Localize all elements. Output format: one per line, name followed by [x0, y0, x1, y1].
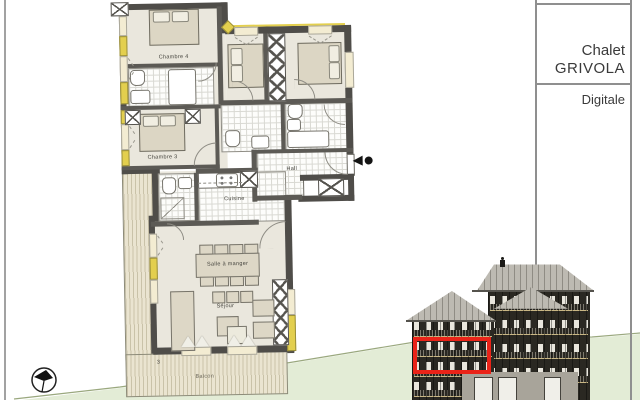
toilet	[288, 104, 303, 119]
window	[121, 124, 129, 150]
chair	[214, 244, 228, 254]
chimney-cap	[501, 257, 504, 260]
room-label-chambre3: Chambre 3	[148, 154, 178, 161]
entry-marker-icon	[353, 155, 373, 165]
entry-dot-icon	[365, 156, 373, 164]
drawing-detail	[157, 236, 163, 244]
window-swing-mark	[129, 58, 138, 80]
duct-shaft	[267, 33, 286, 101]
pillow	[230, 48, 242, 65]
window-swing-mark	[158, 235, 167, 255]
wall	[256, 195, 302, 201]
building-base	[462, 372, 578, 400]
window	[150, 280, 158, 304]
titleblock-divider-line	[535, 83, 631, 85]
garage-door	[474, 377, 493, 400]
wardrobe	[185, 109, 201, 124]
chair	[199, 245, 213, 255]
sink	[178, 177, 192, 189]
french-door-leaf	[241, 335, 255, 346]
apartment-highlight-box	[413, 337, 491, 374]
pillow	[153, 11, 170, 22]
window-swing-mark	[309, 35, 331, 45]
sink	[251, 135, 269, 148]
french-door-leaf	[195, 336, 209, 347]
chair	[200, 277, 214, 287]
pillow	[231, 65, 243, 82]
drawing-detail	[309, 36, 321, 44]
room-label-salle-a-manger: Salle à manger	[207, 261, 248, 268]
window	[227, 346, 257, 356]
armchair	[252, 299, 274, 316]
drawing-page: Balcon	[0, 0, 640, 400]
french-door-leaf	[181, 336, 195, 347]
room-label-cuisine: Cuisine	[224, 196, 245, 202]
french-door-leaf	[227, 335, 241, 346]
armchair	[253, 321, 275, 338]
garage-door	[498, 377, 517, 400]
page-border-left	[4, 0, 6, 400]
toilet	[225, 130, 240, 147]
insulation	[119, 36, 127, 56]
north-arrow-icon	[30, 366, 58, 394]
insulation	[120, 82, 128, 104]
stove	[216, 173, 238, 187]
window	[308, 25, 332, 34]
drawing-detail	[320, 35, 331, 43]
window	[120, 56, 128, 82]
sideboard	[212, 291, 225, 303]
window-swing-mark	[130, 126, 139, 148]
wardrobe	[111, 2, 129, 16]
toilet	[162, 177, 176, 194]
chair	[229, 244, 243, 254]
shower	[160, 197, 184, 219]
sink	[287, 119, 301, 131]
window-swing-mark	[235, 37, 257, 47]
wall	[152, 170, 159, 222]
drawing-detail	[235, 37, 247, 45]
window	[149, 234, 157, 258]
pillow	[160, 115, 176, 126]
entry-triangle-icon	[353, 156, 363, 166]
drawing-detail	[128, 72, 134, 80]
insulation	[149, 258, 157, 280]
wall	[344, 26, 353, 154]
chair	[215, 276, 229, 286]
pillow	[328, 45, 339, 62]
drawing-detail	[128, 58, 134, 66]
chair	[244, 244, 258, 254]
roof-left	[406, 290, 496, 322]
room-label-chambre4: Chambre 4	[159, 54, 189, 61]
roof-left-eave	[406, 320, 496, 322]
room-label-hall: Hall	[286, 166, 297, 172]
pillow	[329, 62, 340, 79]
page-border-right	[630, 0, 632, 400]
chair	[230, 276, 244, 286]
titleblock-grivola: GRIVOLA	[545, 60, 625, 77]
drawing-detail	[158, 247, 164, 255]
pillow	[143, 116, 159, 127]
garage-door	[544, 377, 561, 400]
pillow	[172, 11, 189, 22]
wardrobe	[125, 110, 141, 125]
wardrobe	[318, 178, 344, 196]
roof-center	[472, 264, 594, 292]
room-label-sejour: Séjour	[217, 303, 235, 309]
bathtub	[287, 130, 329, 148]
sideboard	[226, 291, 239, 303]
room-label-balcon: Balcon	[195, 374, 214, 380]
window	[345, 52, 355, 88]
sink	[130, 90, 150, 104]
window	[234, 27, 258, 36]
bathtub	[168, 69, 197, 106]
insulation	[121, 150, 129, 166]
drawing-detail	[129, 126, 135, 134]
drawing-detail	[246, 37, 257, 45]
titleblock-chalet: Chalet	[545, 42, 625, 59]
chimney	[500, 260, 505, 267]
window	[119, 16, 127, 36]
drawing-detail	[130, 140, 136, 148]
titleblock-top-line	[535, 3, 631, 5]
fridge	[240, 171, 258, 188]
building-elevation	[406, 256, 594, 400]
titleblock-digitale: Digitale	[545, 92, 625, 107]
chair	[245, 276, 259, 286]
door-number-label: 3	[157, 360, 160, 366]
